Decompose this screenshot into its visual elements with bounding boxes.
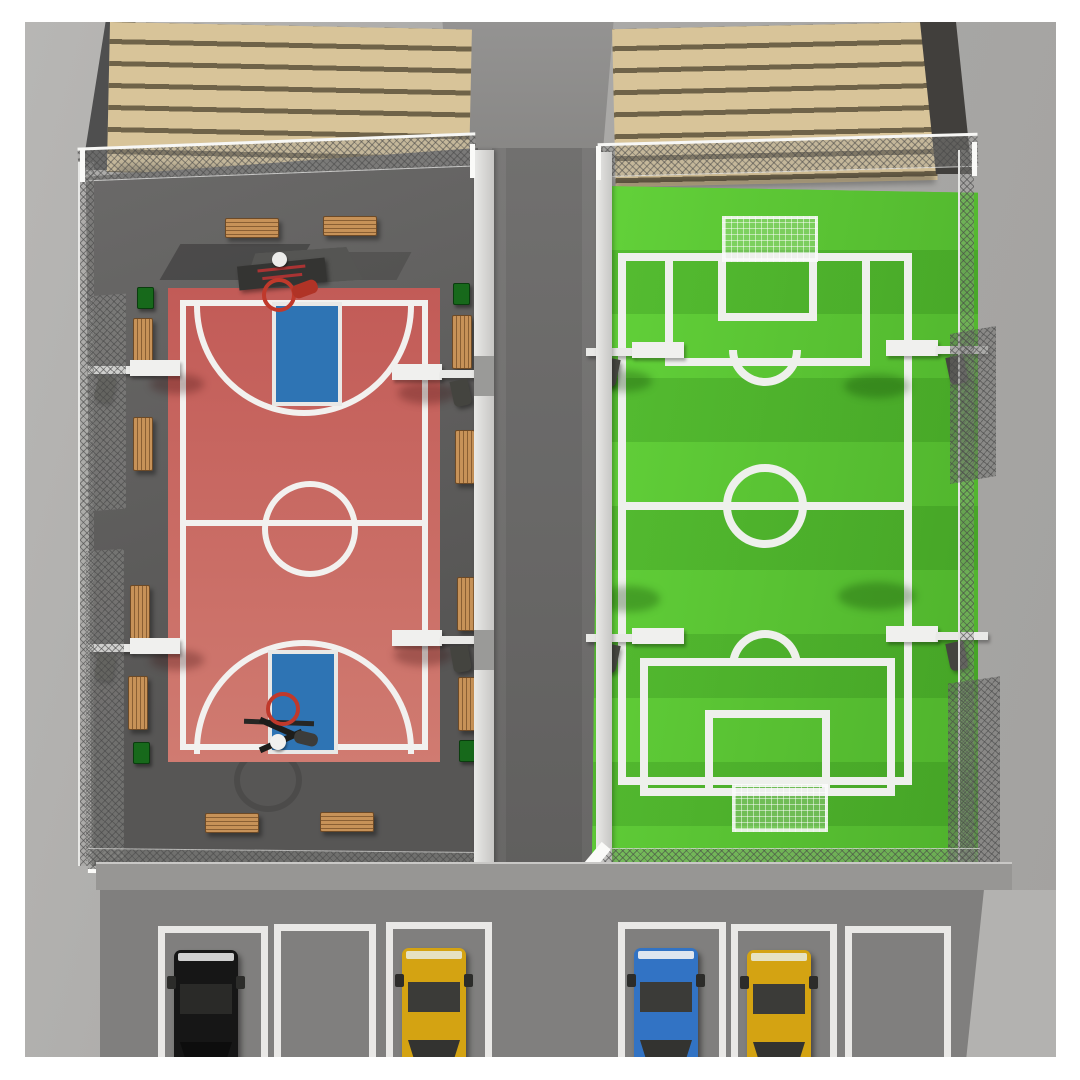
margin-left	[0, 0, 25, 1080]
bench	[323, 216, 377, 236]
soccer-field	[592, 186, 978, 866]
fence-panel	[88, 294, 126, 512]
car-windshield	[180, 984, 232, 1014]
fence-post	[596, 146, 601, 180]
car-mirror	[740, 976, 749, 989]
center-circle	[723, 464, 807, 548]
hoop-pole-bottom	[270, 734, 286, 750]
walkway-inner-shade	[506, 148, 582, 870]
court-center-circle	[262, 481, 358, 577]
bench	[452, 315, 472, 369]
car-windshield	[640, 982, 692, 1012]
fence-post	[470, 144, 475, 178]
bench	[130, 585, 150, 639]
lamp-shadow	[398, 382, 456, 404]
key-top	[272, 302, 342, 406]
margin-bottom	[0, 1057, 1080, 1080]
bench	[225, 218, 279, 238]
fence-panel	[948, 676, 1000, 873]
floodlight-plate	[130, 638, 180, 654]
car-mirror	[395, 974, 404, 987]
margin-top	[0, 0, 1080, 22]
car-mirror	[627, 974, 636, 987]
fence-panel	[950, 326, 996, 484]
fence-panel	[86, 549, 124, 861]
bench	[128, 676, 148, 730]
goal-top	[722, 216, 818, 262]
floodlight-plate	[130, 360, 180, 376]
car-mirror	[464, 974, 473, 987]
wall-gap	[474, 356, 494, 396]
goal-area-top	[718, 253, 817, 321]
car-yellow	[402, 948, 466, 1074]
car-mirror	[167, 976, 176, 989]
hoop-pole-top	[272, 252, 287, 267]
car-windshield	[408, 982, 460, 1012]
fence-post	[972, 142, 977, 176]
lamp-shadow	[838, 582, 916, 610]
green-bin	[133, 742, 150, 764]
floodlight-plate	[886, 626, 938, 642]
car-mirror	[809, 976, 818, 989]
floodlight-plate	[392, 364, 442, 380]
render-canvas	[0, 0, 1080, 1080]
bench	[455, 430, 475, 484]
lamp-shadow	[844, 374, 910, 398]
floodlight-plate	[632, 342, 684, 358]
bench	[205, 813, 259, 833]
wall-soccer-left	[596, 152, 612, 868]
bench	[320, 812, 374, 832]
hoop-rim-top	[262, 278, 296, 312]
car-front-trim	[406, 951, 462, 959]
hoop-rim-bottom	[266, 692, 300, 726]
sidewalk	[96, 862, 1012, 890]
green-bin	[453, 283, 470, 305]
car-windshield	[753, 984, 805, 1014]
floodlight-plate	[632, 628, 684, 644]
parking-stall	[845, 926, 951, 1074]
parking-stall	[274, 924, 376, 1074]
goal-bottom	[732, 784, 828, 832]
fence-post	[80, 148, 85, 182]
car-mirror	[696, 974, 705, 987]
lamp-shadow	[394, 644, 452, 666]
wall-basketball-right	[474, 150, 494, 868]
lamp-shadow	[150, 374, 204, 394]
basketball-court	[168, 288, 440, 762]
car-front-trim	[638, 951, 694, 959]
car-mirror	[236, 976, 245, 989]
car-blue	[634, 948, 698, 1074]
floodlight-plate	[886, 340, 938, 356]
bench	[133, 417, 153, 471]
car-front-trim	[178, 953, 234, 961]
wall-gap	[474, 630, 494, 670]
green-bin	[137, 287, 154, 309]
margin-right	[1056, 0, 1080, 1080]
floodlight-plate	[392, 630, 442, 646]
car-front-trim	[751, 953, 807, 961]
